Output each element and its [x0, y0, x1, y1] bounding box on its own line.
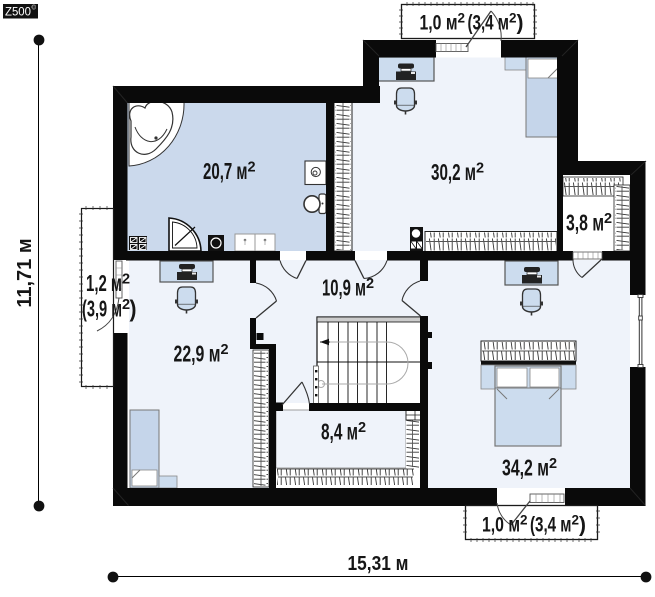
svg-text:): )	[517, 12, 524, 35]
svg-text:2: 2	[248, 160, 256, 176]
svg-text:(3,4 м: (3,4 м	[468, 12, 510, 35]
svg-text:2: 2	[458, 11, 466, 26]
svg-text:2: 2	[549, 456, 557, 472]
svg-text:): )	[579, 514, 586, 537]
svg-text:22,9 м: 22,9 м	[174, 341, 221, 367]
svg-text:Z500: Z500	[5, 5, 31, 19]
svg-text:(3,4 м: (3,4 м	[530, 514, 572, 537]
svg-text:1,2 м: 1,2 м	[86, 270, 122, 296]
svg-text:15,31 м: 15,31 м	[348, 553, 409, 575]
svg-text:©: ©	[32, 5, 37, 12]
svg-text:2: 2	[509, 11, 517, 26]
svg-text:1,0 м: 1,0 м	[482, 514, 520, 537]
svg-text:2: 2	[572, 513, 580, 528]
svg-text:3,8 м: 3,8 м	[566, 210, 604, 236]
svg-text:34,2 м: 34,2 м	[502, 455, 549, 481]
svg-text:2: 2	[366, 276, 374, 292]
svg-text:2: 2	[476, 161, 484, 177]
svg-text:1,0 м: 1,0 м	[420, 12, 458, 35]
svg-text:11,71 м: 11,71 м	[14, 238, 36, 307]
svg-text:2: 2	[221, 342, 229, 358]
svg-text:2: 2	[358, 420, 366, 436]
svg-text:2: 2	[604, 211, 612, 227]
svg-text:8,4 м: 8,4 м	[321, 419, 358, 445]
svg-text:20,7 м: 20,7 м	[203, 158, 248, 184]
svg-text:): )	[130, 296, 137, 322]
svg-text:(3,9 м: (3,9 м	[82, 296, 122, 322]
svg-text:30,2 м: 30,2 м	[431, 159, 476, 185]
svg-text:2: 2	[122, 272, 130, 288]
svg-text:10,9 м: 10,9 м	[322, 275, 366, 301]
svg-text:2: 2	[520, 513, 528, 528]
